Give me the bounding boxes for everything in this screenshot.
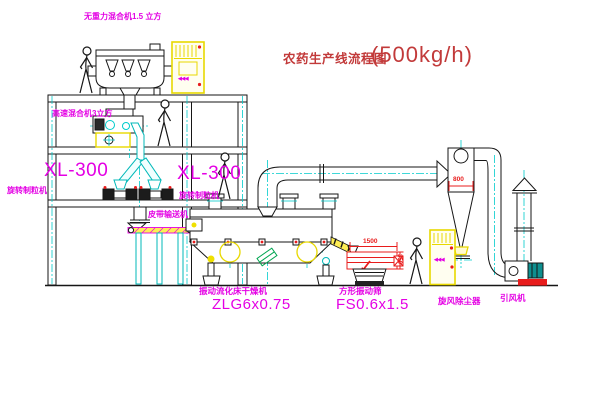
- diagram-title-capacity: (500kg/h): [371, 44, 473, 66]
- person-ground: [410, 238, 423, 284]
- label-sieve-model: FS0.6x1.5: [336, 297, 409, 312]
- label-granulator-left-model: XL-300: [44, 161, 108, 180]
- label-dryer-model: ZLG6x0.75: [212, 297, 291, 312]
- person-level3: [158, 100, 171, 146]
- dim-cyclone-diameter: 800: [453, 177, 464, 184]
- label-cyclone: 旋风除尘器: [438, 297, 481, 306]
- label-dryer-name: 振动流化床干燥机: [199, 287, 267, 296]
- dim-sieve-length: 1500: [363, 239, 377, 246]
- belt-conveyor: [128, 228, 193, 285]
- label-belt-conveyor: 皮带输送机: [148, 211, 188, 219]
- label-granulator-right-name: 旋转制粒机: [179, 192, 219, 200]
- dim-sieve-height: 350: [396, 254, 402, 264]
- cabinet-top-indicator-glyph: ◀◀◀: [178, 77, 188, 82]
- exhaust-stack: [512, 178, 537, 261]
- induced-draft-fan: [505, 261, 547, 286]
- label-granulator-right-model: XL-300: [177, 164, 241, 183]
- label-high-speed-mixer: 高速混合机3立方: [52, 110, 112, 118]
- label-granulator-left-name: 旋转制粒机: [7, 187, 47, 195]
- cabinet-right-indicator-glyph: ◀◀◀: [434, 258, 444, 263]
- control-cabinet-top: [172, 42, 204, 93]
- cyclone-dust-collector: [448, 148, 501, 259]
- y-chute: [114, 158, 161, 189]
- rotary-granulators: [103, 186, 173, 200]
- label-fan: 引风机: [500, 294, 526, 303]
- process-flow-diagram: 农药生产线流程图 (500kg/h) 无重力混合机1.5 立方 高速混合机3立方…: [0, 0, 600, 403]
- label-zero-gravity-mixer: 无重力混合机1.5 立方: [84, 13, 161, 21]
- label-sieve-name: 方形振动筛: [339, 287, 382, 296]
- discharge-duct: [128, 207, 150, 228]
